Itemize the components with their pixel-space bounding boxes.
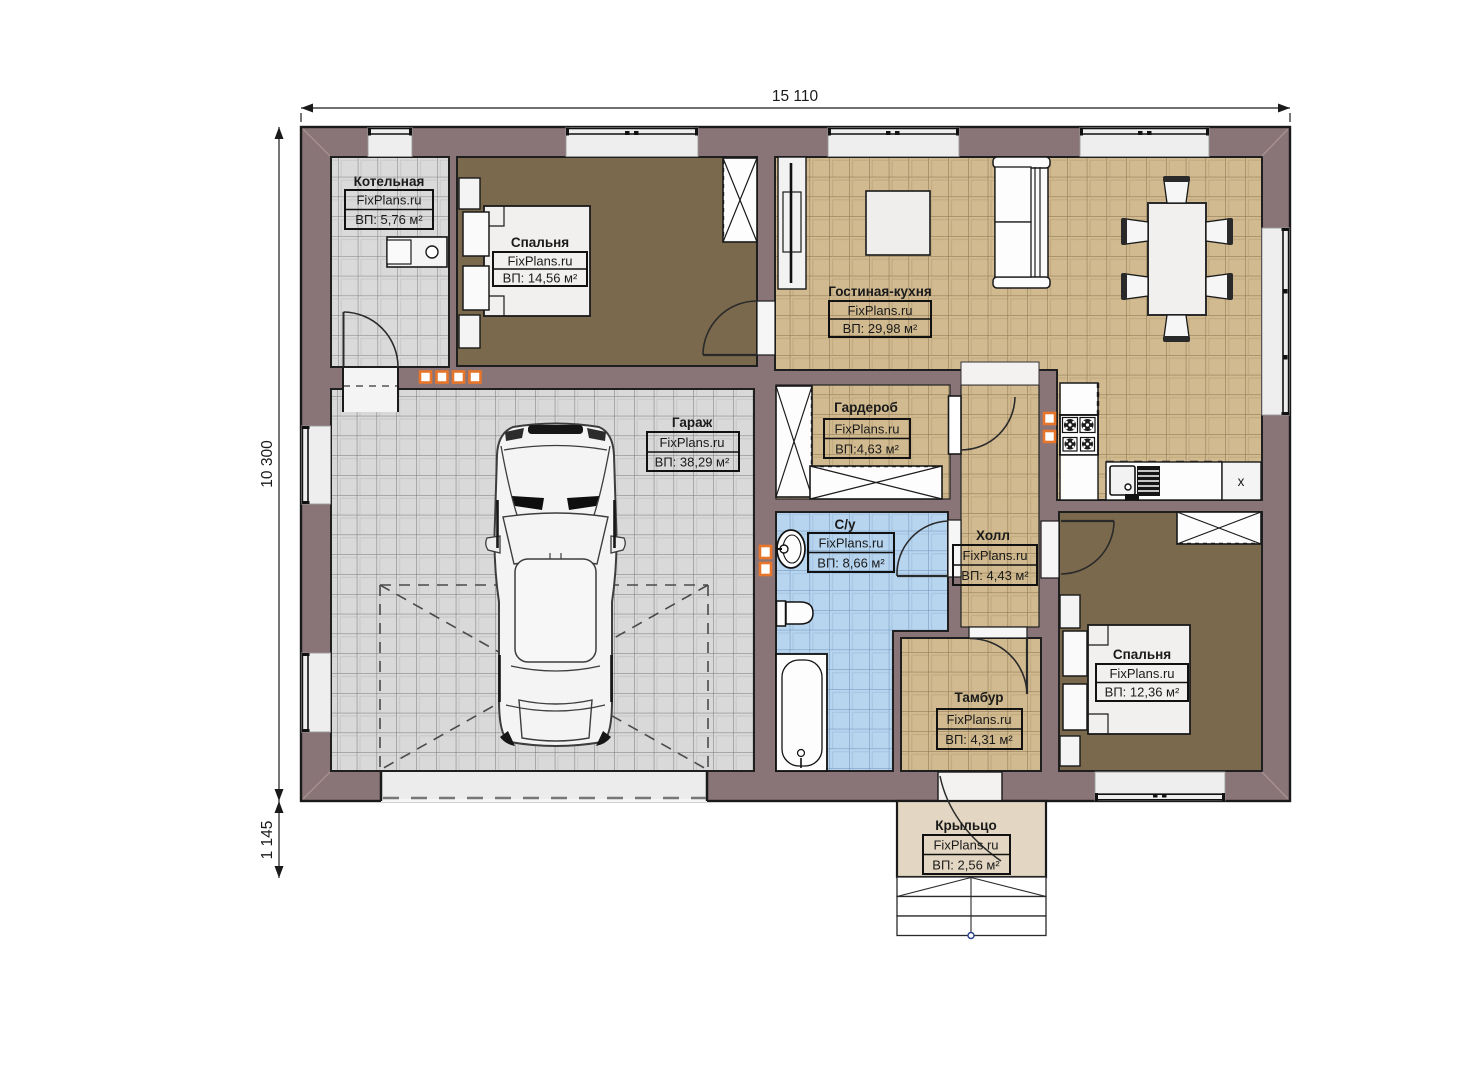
svg-text:Гараж: Гараж <box>672 415 713 430</box>
svg-text:x: x <box>1238 474 1245 489</box>
svg-text:1 145: 1 145 <box>259 821 276 860</box>
svg-text:ВП: 4,31 м²: ВП: 4,31 м² <box>945 732 1013 747</box>
svg-text:ВП: 2,56 м²: ВП: 2,56 м² <box>932 858 1000 873</box>
svg-text:Спальня: Спальня <box>1113 647 1171 662</box>
svg-text:Холл: Холл <box>976 528 1010 543</box>
svg-text:ВП: 5,76 м²: ВП: 5,76 м² <box>355 212 423 227</box>
svg-text:Спальня: Спальня <box>511 235 569 250</box>
svg-text:ВП: 12,36 м²: ВП: 12,36 м² <box>1105 685 1180 700</box>
svg-text:Гостиная-кухня: Гостиная-кухня <box>828 284 931 299</box>
svg-text:FixPlans.ru: FixPlans.ru <box>946 712 1011 727</box>
svg-text:ВП: 4,43 м²: ВП: 4,43 м² <box>961 568 1029 583</box>
svg-text:ВП: 29,98 м²: ВП: 29,98 м² <box>843 321 918 336</box>
svg-text:15 110: 15 110 <box>772 88 819 105</box>
svg-text:FixPlans.ru: FixPlans.ru <box>1109 666 1174 681</box>
svg-text:С/у: С/у <box>834 517 856 532</box>
svg-text:FixPlans.ru: FixPlans.ru <box>962 548 1027 563</box>
svg-text:FixPlans.ru: FixPlans.ru <box>847 303 912 318</box>
svg-text:FixPlans.ru: FixPlans.ru <box>659 435 724 450</box>
svg-text:Тамбур: Тамбур <box>955 690 1004 705</box>
svg-text:10 300: 10 300 <box>259 440 276 488</box>
svg-text:Гардероб: Гардероб <box>834 400 898 415</box>
svg-text:ВП: 38,29 м²: ВП: 38,29 м² <box>655 455 730 470</box>
svg-text:ВП: 8,66 м²: ВП: 8,66 м² <box>817 556 885 571</box>
svg-text:FixPlans.ru: FixPlans.ru <box>507 254 572 269</box>
svg-text:FixPlans.ru: FixPlans.ru <box>834 422 899 437</box>
svg-text:FixPlans.ru: FixPlans.ru <box>933 838 998 853</box>
svg-text:ВП:4,63 м²: ВП:4,63 м² <box>835 442 899 457</box>
svg-text:Котельная: Котельная <box>354 174 425 189</box>
svg-text:FixPlans.ru: FixPlans.ru <box>356 193 421 208</box>
svg-text:FixPlans.ru: FixPlans.ru <box>818 536 883 551</box>
svg-text:Крыльцо: Крыльцо <box>935 818 996 833</box>
svg-text:ВП: 14,56 м²: ВП: 14,56 м² <box>503 271 578 286</box>
